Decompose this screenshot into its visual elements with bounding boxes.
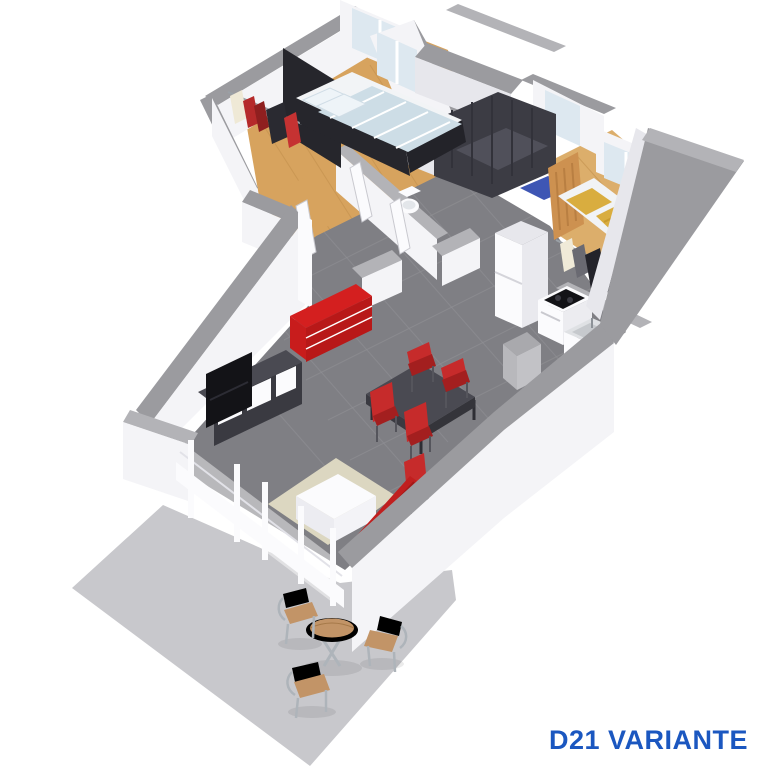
wall-end-cap <box>298 212 312 308</box>
door-post <box>298 506 304 584</box>
variant-label: D21 VARIANTE <box>549 725 748 756</box>
apartment-3d-scene <box>0 0 766 768</box>
door-post <box>262 482 268 560</box>
floorplan-render: D21 VARIANTE <box>0 0 766 768</box>
outer-n-band <box>446 4 566 52</box>
door-post <box>188 440 194 518</box>
door-post <box>330 528 336 606</box>
door-post <box>234 464 240 542</box>
